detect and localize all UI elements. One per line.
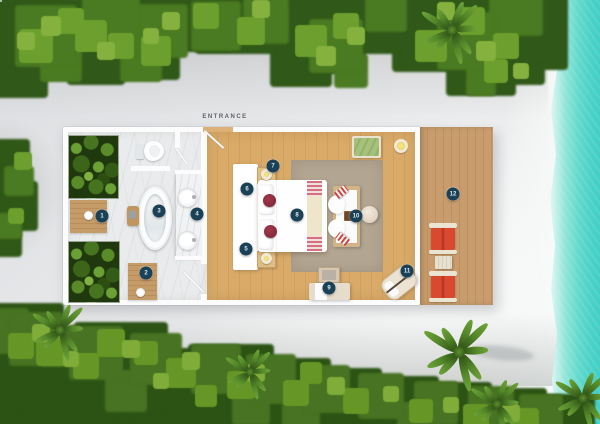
green-cushion-bench — [352, 136, 381, 158]
round-stool — [361, 206, 378, 223]
duvet-fold — [276, 180, 277, 252]
bath-stool — [127, 206, 139, 226]
chair-arm-rail — [429, 250, 457, 255]
marker-11[interactable]: 11 — [401, 265, 414, 278]
deck-side-table — [435, 256, 452, 269]
round-cushion — [263, 194, 276, 207]
sink-basin-top — [178, 188, 197, 207]
palm-trunk-top — [579, 394, 588, 403]
red-chair-cushion — [431, 228, 455, 250]
tree-shadow-left — [0, 120, 60, 260]
chair-arm-rail — [429, 271, 457, 276]
bathroom-bedroom-wall-stub — [201, 294, 207, 300]
palm-trunk-top — [447, 25, 457, 35]
marker-10[interactable]: 10 — [350, 210, 363, 223]
palm-trunk-top — [453, 346, 465, 358]
marker-7[interactable]: 7 — [267, 160, 280, 173]
shower-drain-icon — [84, 211, 93, 220]
candle-flame-icon — [397, 142, 405, 150]
tree-canopy-left — [0, 0, 2, 2]
chair-arm-rail — [429, 223, 457, 228]
marker-3[interactable]: 3 — [153, 205, 166, 218]
courtyard-garden-top — [68, 135, 119, 199]
red-chair-cushion — [431, 276, 455, 298]
palm-trunk-top — [56, 326, 65, 335]
entrance-label: ENTRANCE — [199, 114, 251, 120]
floor-drain-icon — [136, 288, 145, 297]
desk-chair — [328, 195, 345, 214]
marker-5[interactable]: 5 — [240, 243, 253, 256]
marker-8[interactable]: 8 — [291, 209, 304, 222]
marker-9[interactable]: 9 — [323, 282, 336, 295]
marker-1[interactable]: 1 — [96, 210, 109, 223]
marker-6[interactable]: 6 — [241, 183, 254, 196]
marker-4[interactable]: 4 — [191, 208, 204, 221]
sink-basin-bottom — [178, 231, 197, 250]
deck-lounge-chair — [429, 223, 457, 254]
candle-flame-icon — [264, 256, 269, 261]
wc-nook-wall-bottom — [131, 166, 170, 171]
chair-arm-rail — [429, 298, 457, 303]
deck-lounge-chair — [429, 271, 457, 302]
entrance-opening — [203, 127, 233, 132]
marker-2[interactable]: 2 — [140, 267, 153, 280]
vanity-end-wall-bottom — [175, 256, 201, 260]
villa-floorplan-scene: ENTRANCE — [0, 0, 600, 424]
wc-nook-wall-right — [175, 127, 180, 148]
bathroom-bedroom-wall — [201, 132, 207, 264]
palm-trunk-top — [493, 400, 502, 409]
bathtub-basin — [144, 194, 166, 242]
marker-12[interactable]: 12 — [447, 188, 460, 201]
round-cushion — [264, 225, 277, 238]
courtyard-garden-bottom — [68, 241, 120, 303]
bed-runner — [307, 181, 322, 251]
bathtub — [138, 186, 172, 250]
toilet-tank — [136, 144, 144, 159]
candle-flame-icon — [264, 172, 269, 177]
vanity-end-wall-top — [175, 170, 201, 174]
palm-trunk-top — [246, 368, 254, 376]
